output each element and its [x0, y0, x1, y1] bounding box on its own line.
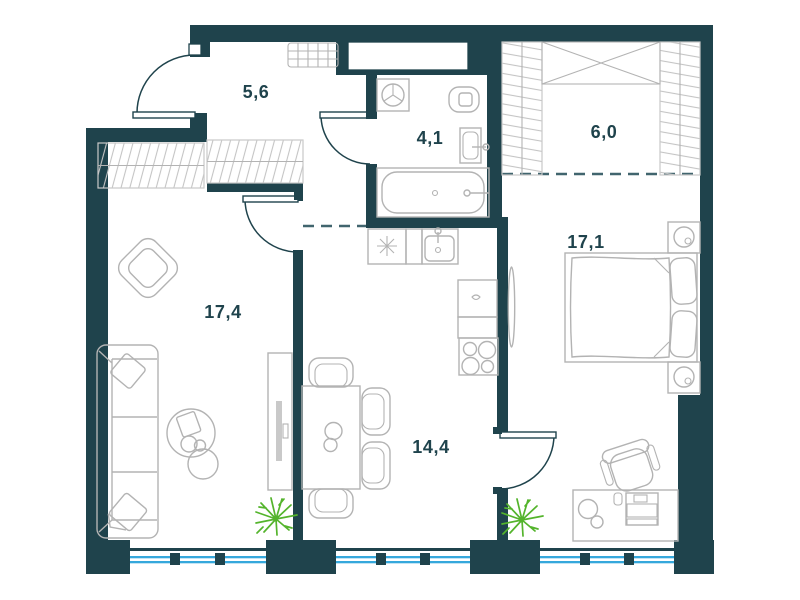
room-label-kitchen-dining: 14,4	[412, 437, 449, 457]
nightstand	[668, 362, 700, 393]
windows	[130, 553, 674, 565]
window-kitchen	[336, 553, 470, 565]
room-label-living-room: 17,4	[204, 302, 241, 322]
door-hinge	[493, 487, 502, 494]
wardrobe-rail	[502, 42, 542, 175]
window-mullion	[624, 553, 634, 565]
tv-console	[268, 353, 292, 490]
wardrobe-rail	[660, 42, 700, 175]
desk-item	[591, 516, 603, 528]
wardrobe-cabinet	[542, 42, 660, 84]
bathroom-sink	[460, 128, 489, 163]
toilet	[449, 87, 479, 112]
living-room-door	[243, 191, 303, 252]
door-hinge	[294, 191, 303, 200]
desk	[573, 490, 678, 541]
walls	[86, 25, 714, 574]
bed	[565, 253, 698, 362]
kitchen-sink	[422, 228, 458, 264]
shoe-rack	[288, 43, 338, 67]
floor-plan: 5,6 4,1 6,0 17,1 17,4 14,4	[0, 0, 800, 600]
window-mullion	[170, 553, 180, 565]
bathroom-door	[320, 110, 377, 164]
room-label-bedroom: 17,1	[567, 232, 604, 252]
plant	[256, 498, 297, 535]
coffee-table	[167, 409, 218, 479]
entrance-door	[133, 44, 201, 118]
bed-pillow	[669, 257, 697, 305]
phone	[614, 493, 622, 505]
bed-pillow	[669, 310, 697, 358]
plate	[324, 439, 337, 452]
window-mullion	[420, 553, 430, 565]
tv	[276, 401, 282, 461]
washing-machine	[377, 79, 409, 111]
window-living-room	[130, 553, 266, 565]
plate	[325, 423, 342, 440]
office-chair	[597, 437, 664, 497]
hallway-closet	[207, 140, 303, 183]
room-label-wardrobe: 6,0	[591, 122, 618, 142]
window-mullion	[580, 553, 590, 565]
dining-chair	[362, 388, 390, 435]
door-hinge	[493, 427, 502, 434]
window-mullion	[215, 553, 225, 565]
blanket	[571, 257, 671, 358]
living-room-closet	[98, 143, 204, 188]
dining-chair	[309, 358, 353, 387]
plant	[502, 499, 543, 536]
dining-chair	[362, 442, 390, 489]
throw-pillow	[110, 353, 147, 390]
wall-niche	[348, 42, 468, 70]
appliance-symbol	[377, 236, 397, 256]
dining-table	[302, 386, 360, 489]
lamp	[674, 367, 694, 387]
nightstand	[668, 222, 700, 253]
floor-plan-page: 5,6 4,1 6,0 17,1 17,4 14,4	[0, 0, 800, 600]
bathtub	[377, 168, 489, 217]
armchair	[114, 234, 182, 302]
printer	[626, 493, 658, 525]
room-label-bathroom: 4,1	[417, 128, 444, 148]
cabinet-handle	[472, 295, 480, 300]
window-bedroom	[540, 553, 674, 565]
door-hinge	[366, 110, 377, 119]
door-hinge	[189, 44, 201, 55]
bedroom-door	[493, 427, 556, 494]
dining-chair	[309, 489, 353, 518]
window-mullion	[376, 553, 386, 565]
standing-mirror	[508, 267, 514, 347]
throw-pillow	[102, 492, 147, 538]
room-label-hallway: 5,6	[243, 82, 270, 102]
desk-item	[579, 500, 598, 519]
stove	[459, 338, 498, 375]
lamp	[674, 227, 694, 247]
kitchen-counter	[368, 228, 498, 375]
